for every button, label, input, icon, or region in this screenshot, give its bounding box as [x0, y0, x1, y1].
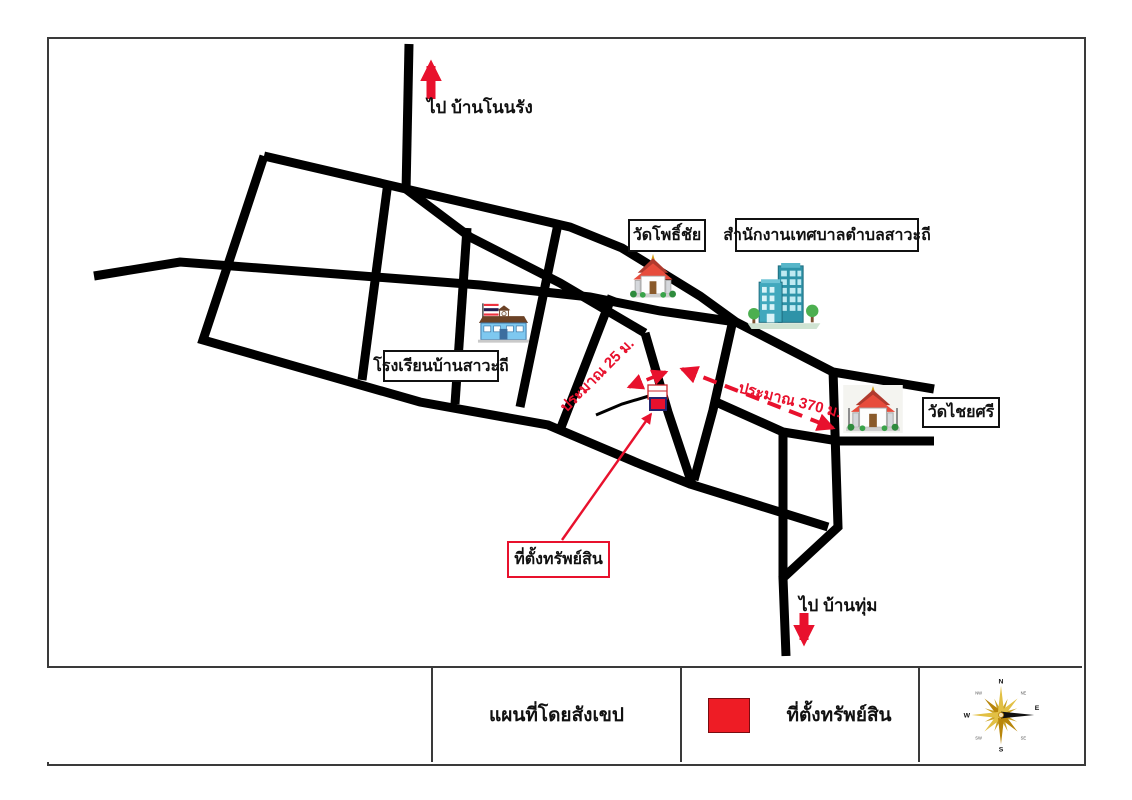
sketch-map-page: ไป บ้านโนนรัง ไป บ้านทุ่ม ประมาณ 25 ม. ป…	[0, 0, 1132, 800]
legend-property-label: ที่ตั้งทรัพย์สิน	[786, 700, 891, 730]
legend-bar: แผนที่โดยสังเขป ที่ตั้งทรัพย์สิน	[47, 666, 1082, 762]
compass-n-label: N	[999, 678, 1004, 685]
south-direction-label: ไป บ้านทุ่ม	[799, 592, 877, 619]
compass-rose-icon: N E S W NE SE SW NW	[962, 676, 1040, 754]
municipality-label: สำนักงานเทศบาลตำบลสาวะถี	[735, 218, 919, 252]
school-label: โรงเรียนบ้านสาวะถี	[383, 350, 499, 382]
compass-sw-label: SW	[975, 735, 982, 740]
wat-chai-si-label: วัดไชยศรี	[922, 397, 1000, 428]
compass-e-label: E	[1035, 705, 1040, 712]
municipality-building-icon	[745, 263, 823, 330]
wat-pho-chai-label: วัดโพธิ์ชัย	[628, 219, 706, 252]
compass-nw-label: NW	[975, 691, 982, 696]
legend-property-cell: ที่ตั้งทรัพย์สิน	[680, 668, 918, 762]
property-callout-box: ที่ตั้งทรัพย์สิน	[507, 541, 610, 578]
compass-s-label: S	[999, 747, 1004, 754]
wat-pho-chai-temple-icon	[627, 254, 679, 300]
school-icon	[476, 301, 531, 345]
map-title: แผนที่โดยสังเขป	[489, 700, 624, 730]
compass-se-label: SE	[1021, 735, 1027, 740]
thai-flag-icon	[484, 304, 499, 316]
compass-cell: N E S W NE SE SW NW	[918, 668, 1082, 762]
legend-empty-cell	[47, 668, 431, 762]
map-title-cell: แผนที่โดยสังเขป	[431, 668, 680, 762]
property-color-swatch	[708, 698, 750, 733]
compass-ne-label: NE	[1021, 691, 1027, 696]
compass-w-label: W	[964, 712, 971, 719]
north-direction-label: ไป บ้านโนนรัง	[427, 94, 533, 121]
